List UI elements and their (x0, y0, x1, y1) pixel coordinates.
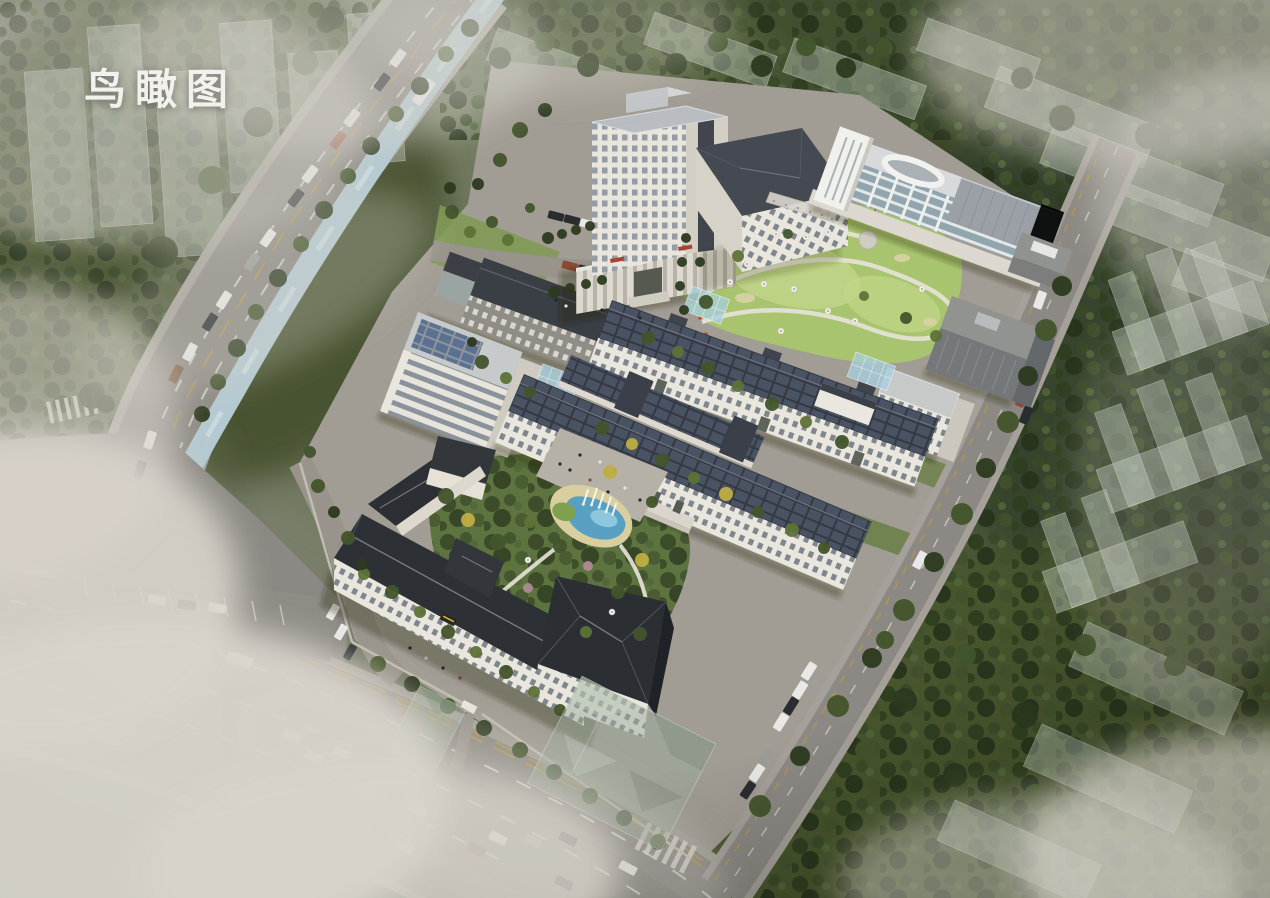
view-title-label: 鸟瞰图 (84, 56, 237, 117)
rendering-canvas (0, 0, 1270, 898)
aerial-rendering: 鸟瞰图 (0, 0, 1270, 898)
